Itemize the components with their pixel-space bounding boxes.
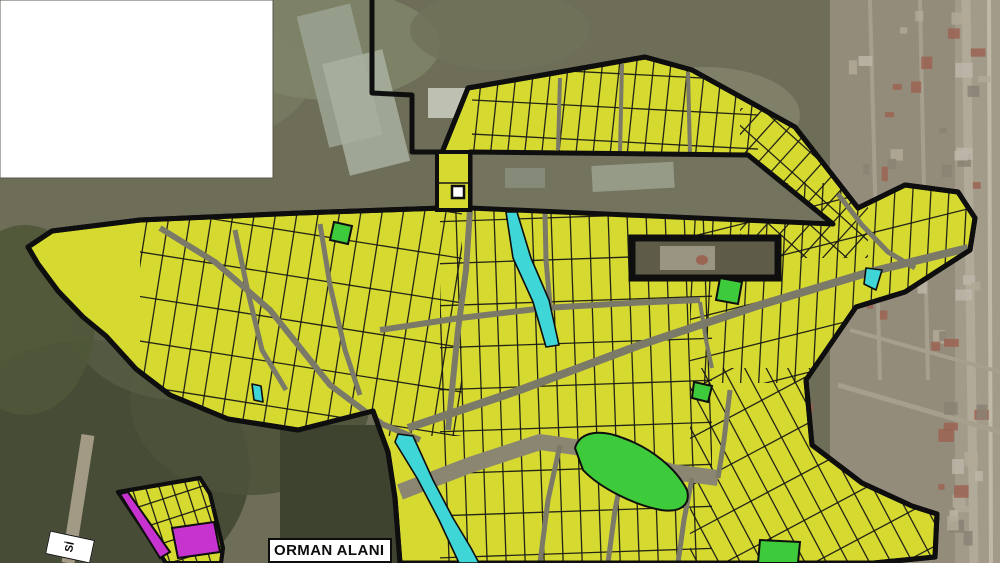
commercial-parcel <box>172 522 220 558</box>
square-parcel <box>437 152 470 210</box>
park-parcel-4 <box>330 222 352 244</box>
park-parcel-3 <box>758 540 800 563</box>
road <box>558 78 560 150</box>
zoning-plan-map <box>0 0 1000 563</box>
park-parcel-2 <box>692 382 712 402</box>
white-cutout <box>0 0 273 178</box>
park-parcel-1 <box>716 278 742 304</box>
forest-area-label: ORMAN ALANI <box>268 538 392 563</box>
road <box>620 64 622 152</box>
square-parcel-hole <box>452 186 464 198</box>
road <box>688 72 690 155</box>
map-canvas: ORMAN ALANI Sİ <box>0 0 1000 563</box>
water-parcel-west <box>252 384 263 402</box>
